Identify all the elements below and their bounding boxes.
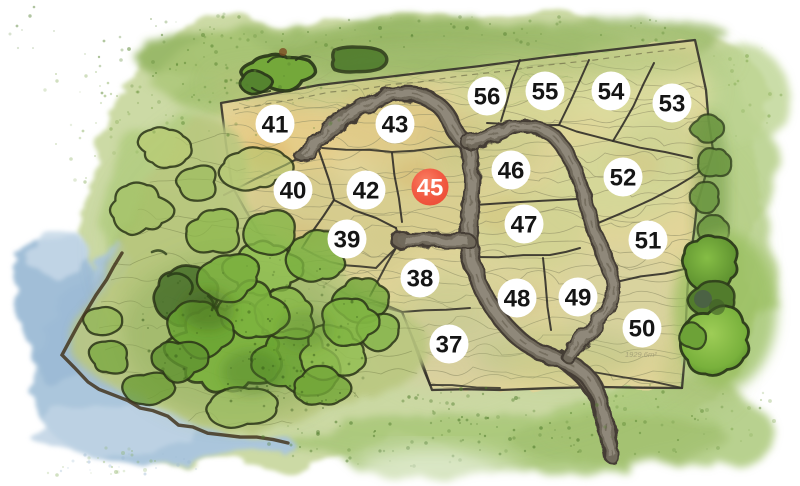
svg-text:41: 41 [262, 112, 289, 139]
svg-text:49: 49 [565, 285, 592, 312]
svg-text:56: 56 [474, 84, 501, 111]
svg-text:54: 54 [598, 79, 625, 106]
svg-text:47: 47 [511, 212, 538, 239]
svg-text:1929.6m²: 1929.6m² [625, 350, 657, 359]
svg-text:50: 50 [629, 316, 656, 343]
svg-text:45: 45 [417, 175, 444, 202]
svg-text:37: 37 [436, 332, 463, 359]
svg-text:52: 52 [610, 165, 637, 192]
svg-text:53: 53 [659, 91, 686, 118]
svg-text:43: 43 [382, 112, 409, 139]
svg-text:48: 48 [504, 286, 531, 313]
svg-text:55: 55 [532, 79, 559, 106]
svg-text:38: 38 [407, 266, 434, 293]
svg-text:42: 42 [353, 178, 380, 205]
svg-text:40: 40 [280, 178, 307, 205]
svg-text:39: 39 [334, 227, 361, 254]
svg-text:51: 51 [635, 228, 662, 255]
svg-text:46: 46 [498, 158, 525, 185]
